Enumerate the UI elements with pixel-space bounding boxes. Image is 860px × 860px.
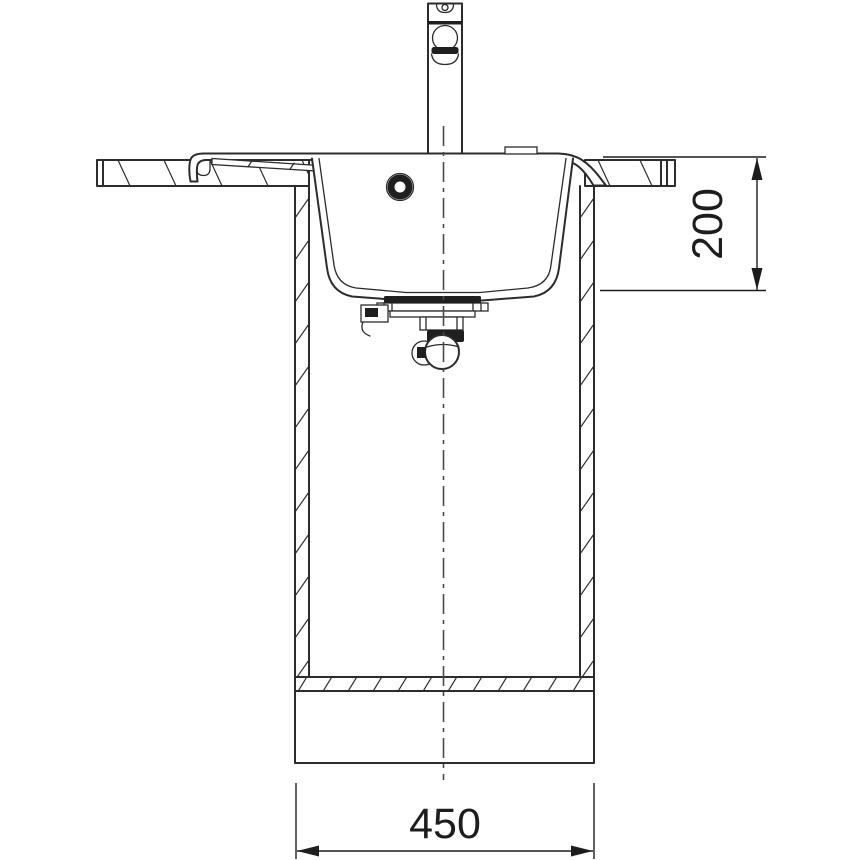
bracket-hook (362, 322, 370, 336)
cabinet-right-wall-hatch (580, 186, 594, 677)
bowl-outer-wall (312, 159, 573, 301)
tap-cap-joint (428, 21, 462, 25)
depth-arrow-up (752, 158, 763, 180)
cabinet-left-wall-hatch (295, 186, 309, 677)
flange-lower-ring (390, 311, 475, 317)
cabinet-bottom-hatch (295, 677, 594, 691)
technical-drawing-page: 200 450 (0, 0, 860, 860)
trap-body (425, 335, 459, 369)
tap-lever-dark (432, 47, 459, 54)
sink-bowl (312, 159, 573, 301)
depth-arrow-down (752, 268, 763, 290)
tap-lever-ball (433, 26, 458, 51)
sink-section-drawing: 200 450 (0, 0, 860, 860)
bracket-dark (365, 308, 378, 317)
depth-dimension-label: 200 (684, 188, 732, 260)
overflow-bracket (361, 305, 388, 336)
trap-clip-dark (417, 347, 426, 358)
siphon-trap (412, 335, 459, 369)
plinth (295, 691, 594, 763)
width-arrow-left (297, 846, 319, 857)
flange-plate (377, 303, 488, 311)
mixer-tap (428, 4, 462, 154)
width-dimension: 450 (296, 783, 594, 859)
tap-hole-cover (505, 147, 537, 154)
waste-drain-assembly (361, 296, 488, 369)
width-arrow-right (571, 846, 593, 857)
flange-seal-dark (384, 296, 481, 303)
width-dimension-label: 450 (409, 800, 481, 848)
